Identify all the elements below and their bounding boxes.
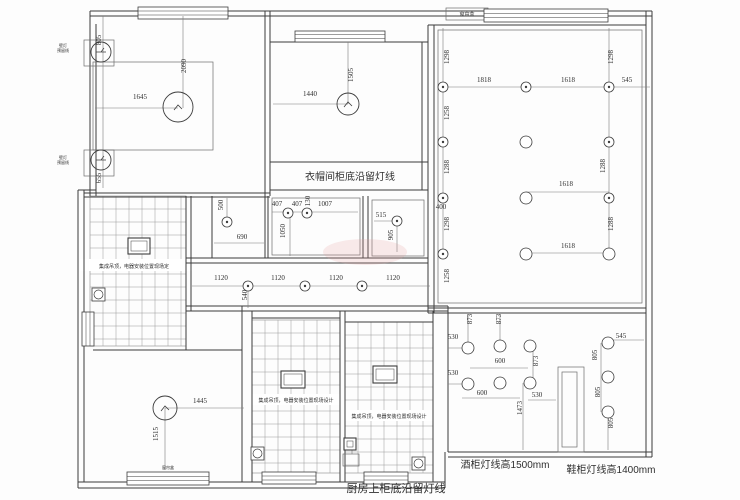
wall-lamp-icon bbox=[96, 156, 106, 160]
downlight-icon bbox=[602, 406, 614, 418]
note-label: 酒柜灯线高1500mm bbox=[461, 458, 550, 471]
note-label: 鞋柜灯线高1400mm bbox=[567, 463, 656, 476]
dimension-label: 1120 bbox=[386, 274, 400, 282]
dimension-label: 805 bbox=[591, 349, 599, 360]
spotlight-icon bbox=[608, 141, 610, 143]
spotlight-icon bbox=[306, 212, 308, 214]
window bbox=[295, 31, 385, 42]
spotlight-icon bbox=[226, 221, 228, 223]
dimension-label: 1120 bbox=[271, 274, 285, 282]
dimension-label: 1298 bbox=[443, 217, 451, 232]
appliance-fixture-icon bbox=[344, 438, 356, 450]
window bbox=[484, 9, 608, 22]
dimension-label: 873 bbox=[532, 355, 540, 366]
note-label: 窗帘盒 bbox=[162, 464, 174, 470]
appliance-fixture-icon bbox=[128, 238, 150, 254]
spotlight-icon bbox=[287, 212, 289, 214]
spotlight-icon bbox=[442, 141, 444, 143]
spotlight-icon bbox=[442, 253, 444, 255]
interior-rect bbox=[84, 150, 114, 176]
downlight-icon bbox=[462, 378, 474, 390]
dimension-label: 600 bbox=[495, 357, 506, 365]
window bbox=[82, 312, 94, 346]
dimension-label: 655 bbox=[95, 172, 103, 183]
dimension-label: 1298 bbox=[443, 50, 451, 65]
dimension-label: 1258 bbox=[443, 269, 451, 284]
appliance-fixture-icon bbox=[281, 371, 305, 388]
downlight-icon bbox=[524, 340, 536, 352]
dimension-label: 545 bbox=[622, 76, 633, 84]
dimension-label: 1618 bbox=[559, 180, 574, 188]
dimension-label: 1818 bbox=[477, 76, 492, 84]
downlight-icon bbox=[520, 136, 532, 148]
dimension-label: 515 bbox=[376, 211, 387, 219]
appliance-fixture-icon bbox=[373, 366, 397, 383]
spotlight-icon bbox=[304, 285, 306, 287]
dimension-label: 873 bbox=[495, 313, 503, 324]
dimension-label: 1258 bbox=[443, 106, 451, 121]
note-label: 窗帘盒 bbox=[459, 11, 474, 18]
dimension-label: 1298 bbox=[607, 50, 615, 65]
floorplan: 8056552090164515051440181816185451298125… bbox=[0, 0, 740, 500]
ceiling-light-icon bbox=[163, 92, 193, 122]
spotlight-icon bbox=[608, 197, 610, 199]
downlight-icon bbox=[602, 337, 614, 349]
spotlight-icon bbox=[442, 86, 444, 88]
dimension-label: 407 bbox=[292, 200, 303, 208]
spotlight-icon bbox=[361, 285, 363, 287]
dimension-label: 1288 bbox=[607, 217, 615, 232]
watermark bbox=[323, 239, 407, 265]
dimension-label: 545 bbox=[616, 332, 627, 340]
dimension-label: 1440 bbox=[303, 90, 318, 98]
dimension-label: 1645 bbox=[133, 93, 148, 101]
note-label: 衣帽间柜底沿留灯线 bbox=[305, 170, 395, 183]
dimension-label: 1618 bbox=[561, 242, 576, 250]
dimension-label: 530 bbox=[448, 369, 459, 377]
note-label: 预留线 bbox=[57, 159, 69, 165]
spotlight-icon bbox=[525, 86, 527, 88]
window bbox=[127, 472, 209, 485]
dimension-label: 530 bbox=[532, 391, 543, 399]
dimension-label: 407 bbox=[272, 200, 283, 208]
dimension-label: 1120 bbox=[214, 274, 228, 282]
spotlight-icon bbox=[247, 285, 249, 287]
spotlight-icon bbox=[442, 197, 444, 199]
downlight-icon bbox=[520, 248, 532, 260]
interior-rect bbox=[438, 30, 642, 303]
window bbox=[262, 472, 316, 484]
dimension-label: 1473 bbox=[516, 401, 524, 416]
dimension-label: 1007 bbox=[318, 200, 333, 208]
dimension-label: 530 bbox=[448, 333, 459, 341]
dimension-label: 805 bbox=[95, 34, 103, 45]
dimension-label: 1288 bbox=[443, 160, 451, 175]
dimension-label: 1505 bbox=[347, 68, 355, 83]
dimension-label: 1445 bbox=[193, 397, 208, 405]
interior-rect bbox=[93, 62, 213, 150]
wall-lamp-icon bbox=[96, 48, 106, 52]
dimension-label: 600 bbox=[477, 389, 488, 397]
dimension-label: 1515 bbox=[152, 427, 160, 442]
downlight-icon bbox=[602, 371, 614, 383]
spotlight-icon bbox=[608, 86, 610, 88]
note-label: 厨房上柜底沿留灯线 bbox=[347, 481, 446, 495]
spotlight-icon bbox=[396, 220, 398, 222]
downlight-icon bbox=[462, 342, 474, 354]
dimension-label: 500 bbox=[217, 199, 225, 210]
dimension-label: 905 bbox=[387, 229, 395, 240]
dimension-label: 400 bbox=[436, 203, 447, 211]
note-label: 集成吊顶，电器安装位置现场定 bbox=[99, 263, 169, 270]
floorplan-drawing: 8056552090164515051440181816185451298125… bbox=[0, 0, 740, 500]
note-label: 集成吊顶，电器安装位置现场设计 bbox=[351, 413, 426, 420]
downlight-icon bbox=[603, 248, 615, 260]
dimension-label: 1050 bbox=[279, 224, 287, 239]
dimension-label: 1120 bbox=[329, 274, 343, 282]
dimension-label: 540 bbox=[241, 289, 249, 300]
dimension-label: 873 bbox=[466, 313, 474, 324]
dimension-label: 130 bbox=[304, 195, 312, 206]
downlight-icon bbox=[494, 377, 506, 389]
downlight-icon bbox=[520, 192, 532, 204]
dimension-label: 1288 bbox=[599, 159, 607, 174]
interior-rect bbox=[562, 372, 577, 447]
dimension-label: 2090 bbox=[180, 59, 188, 74]
downlight-icon bbox=[524, 377, 536, 389]
note-label: 集成吊顶，电器安装位置现场设计 bbox=[258, 397, 333, 404]
dimension-label: 1618 bbox=[561, 76, 576, 84]
note-label: 预留线 bbox=[57, 47, 69, 53]
dimension-label: 690 bbox=[237, 233, 248, 241]
dimension-label: 805 bbox=[607, 417, 615, 428]
dimension-label: 805 bbox=[594, 386, 602, 397]
ceiling-light-icon bbox=[174, 105, 182, 110]
downlight-icon bbox=[494, 340, 506, 352]
